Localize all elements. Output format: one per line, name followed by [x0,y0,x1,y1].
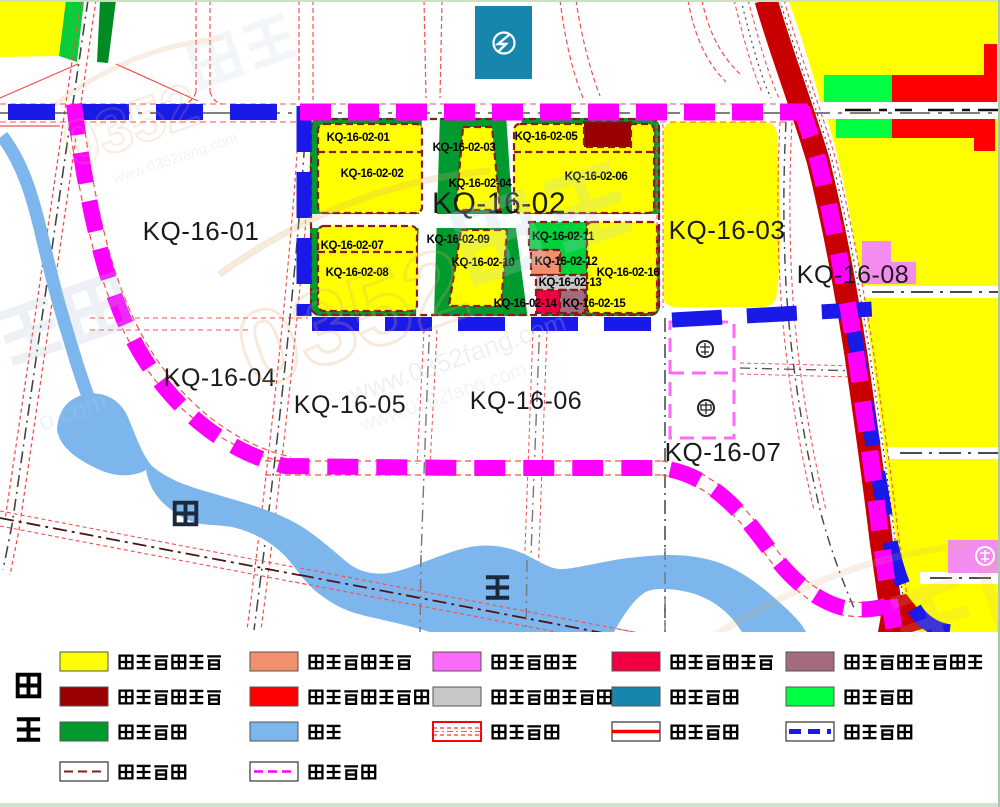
svg-text:KQ-16-02-03: KQ-16-02-03 [433,142,496,154]
svg-text:KQ-16-02-14: KQ-16-02-14 [494,298,558,310]
svg-text:KQ-16-02-15: KQ-16-02-15 [563,298,627,310]
svg-text:KQ-16-02-05: KQ-16-02-05 [515,131,579,143]
svg-text:KQ-16-08: KQ-16-08 [797,261,909,289]
svg-text:KQ-16-02-16: KQ-16-02-16 [597,267,660,279]
svg-text:KQ-16-02-13: KQ-16-02-13 [539,277,602,289]
svg-text:KQ-16-01: KQ-16-01 [143,216,260,246]
svg-text:KQ-16-02-02: KQ-16-02-02 [341,168,404,180]
svg-text:KQ-16-02-01: KQ-16-02-01 [327,132,391,144]
svg-text:KQ-16-03: KQ-16-03 [669,215,786,245]
svg-text:KQ-16-07: KQ-16-07 [665,437,782,467]
